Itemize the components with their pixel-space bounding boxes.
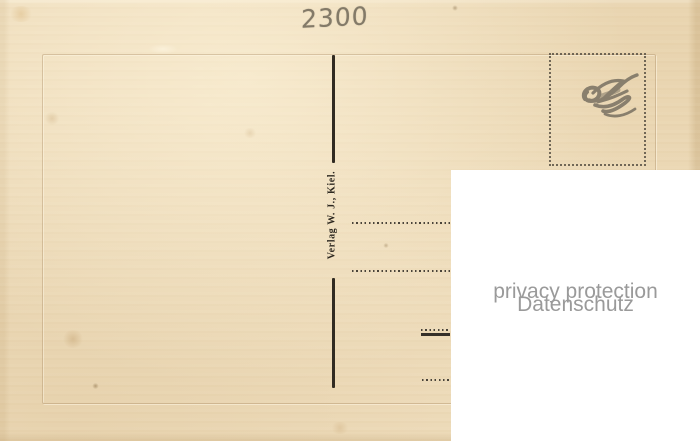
address-rule-solid bbox=[421, 333, 450, 336]
divider-line-bottom bbox=[332, 278, 335, 388]
age-spot bbox=[330, 422, 350, 434]
address-line bbox=[352, 222, 450, 224]
age-spot bbox=[8, 6, 34, 22]
address-line bbox=[352, 270, 450, 272]
privacy-overlay-line-2: Datenschutz bbox=[451, 294, 700, 315]
address-line bbox=[422, 379, 450, 381]
publisher-imprint: Verlag W. J., Kiel. bbox=[327, 167, 341, 264]
handwritten-number: 2300 bbox=[301, 2, 371, 33]
age-spot bbox=[148, 44, 178, 54]
divider-line-top bbox=[332, 55, 335, 163]
address-line bbox=[421, 329, 450, 331]
privacy-overlay: privacy protection Datenschutz bbox=[451, 170, 700, 441]
pencil-scribble-icon bbox=[578, 70, 642, 128]
postcard-scan: 2300 Verlag W. J., Kiel. privacy protect… bbox=[0, 0, 700, 441]
age-spot bbox=[452, 5, 458, 11]
